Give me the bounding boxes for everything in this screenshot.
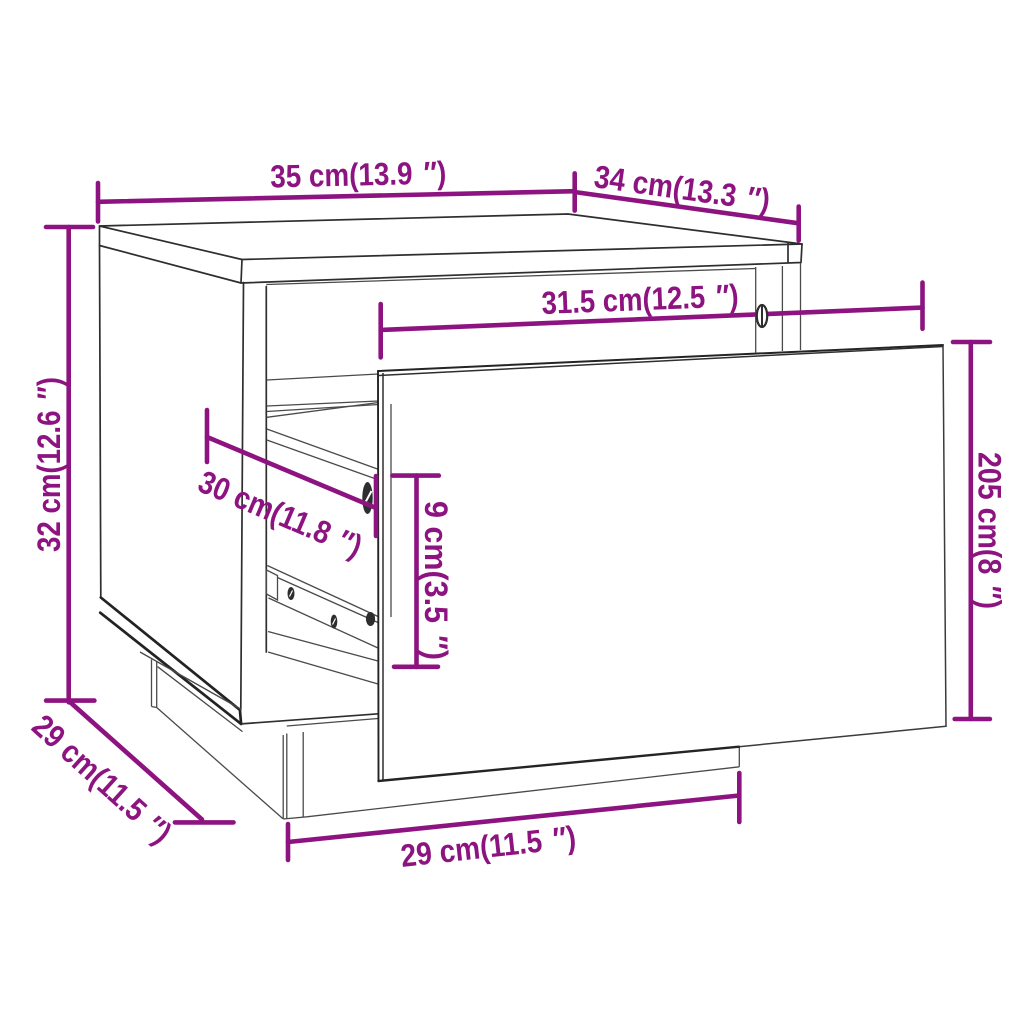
svg-text:31.5 cm(12.5 ″): 31.5 cm(12.5 ″) <box>541 277 739 321</box>
svg-text:205 cm(8 ″): 205 cm(8 ″) <box>972 452 1008 609</box>
svg-text:32 cm(12.6 ″): 32 cm(12.6 ″) <box>31 377 67 552</box>
svg-text:35 cm(13.9 ″): 35 cm(13.9 ″) <box>270 155 447 195</box>
svg-text:9 cm(3.5 ″): 9 cm(3.5 ″) <box>418 501 454 660</box>
